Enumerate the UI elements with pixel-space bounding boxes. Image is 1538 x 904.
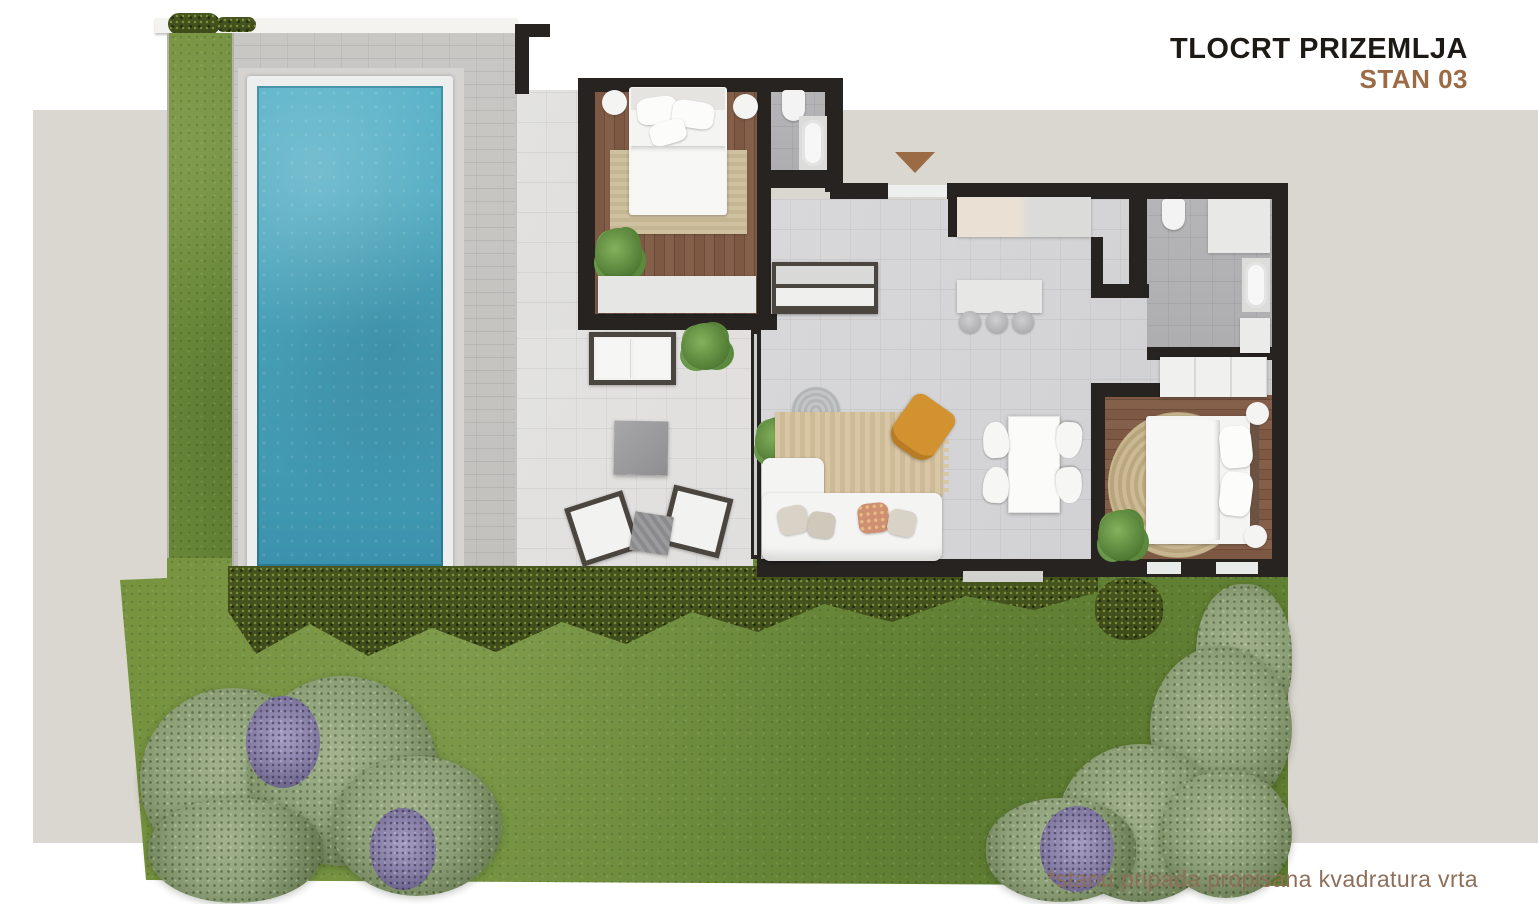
toilet [1162,199,1185,230]
entrance-door [888,185,947,197]
bar-stool [959,311,981,333]
door-threshold [963,571,1043,582]
media-console [772,262,878,314]
potted-plant [681,323,730,370]
lawn-strip-left [167,33,235,578]
sofa-cushion [596,339,631,378]
ottoman [629,511,674,556]
console-shelf [776,266,874,284]
bedroom2-glass-door [1216,562,1258,574]
side-table [733,94,758,119]
bar-stool [986,311,1008,333]
bar-stool [1012,311,1034,333]
wardrobe [1160,357,1267,397]
outdoor-table [614,421,669,476]
pillow [1217,470,1254,518]
lavender-bush [370,808,436,890]
side-table [602,90,627,115]
pool-water [257,86,443,566]
bathtub [802,120,824,166]
bathtub [1245,262,1267,308]
side-table [1244,525,1267,548]
hedge-patch [1095,578,1163,640]
wall-hall-bathroom2 [1129,198,1147,290]
wall-bedroom1-left [578,78,595,330]
bathroom-cabinet [1240,318,1270,353]
pillow-terracotta [857,501,891,534]
kitchen-counter [957,197,1091,237]
bed-blanket [631,146,725,215]
ivy-on-wall [216,17,256,32]
plan-title: TLOCRT PRIZEMLJA [968,33,1468,66]
dining-chair [982,466,1010,504]
shower-area [1208,199,1270,253]
dining-table [1008,416,1060,513]
bush [148,798,323,903]
sofa-cushion [634,339,669,378]
potted-plant [595,228,642,280]
bedroom2-glass-door [1147,562,1181,574]
wall-corner-top [515,24,529,94]
wall-outer-right [1272,183,1288,577]
lavender-bush [246,696,320,788]
footnote-text: *stanu pripada propisana kvadratura vrta [778,866,1478,893]
pillow [1218,424,1254,469]
wall-entry-left [830,183,888,199]
entrance-arrow-icon [895,152,935,173]
side-table [1246,402,1269,425]
console-shelf [776,288,874,306]
plan-unit-label: STAN 03 [968,64,1468,95]
wall-bedroom1-bottom [578,314,777,330]
floor-plan-canvas: TLOCRT PRIZEMLJA STAN 03 *stanu pripada … [0,0,1538,904]
outdoor-sofa [589,332,676,385]
terrace-upper [515,90,580,332]
potted-plant [1098,510,1145,561]
dresser [598,276,756,313]
pillow [806,510,836,540]
ivy-on-wall [168,13,220,35]
wall-bedroom1-right [757,92,771,330]
bed-blanket [1148,420,1220,540]
kitchen-island [957,280,1042,313]
